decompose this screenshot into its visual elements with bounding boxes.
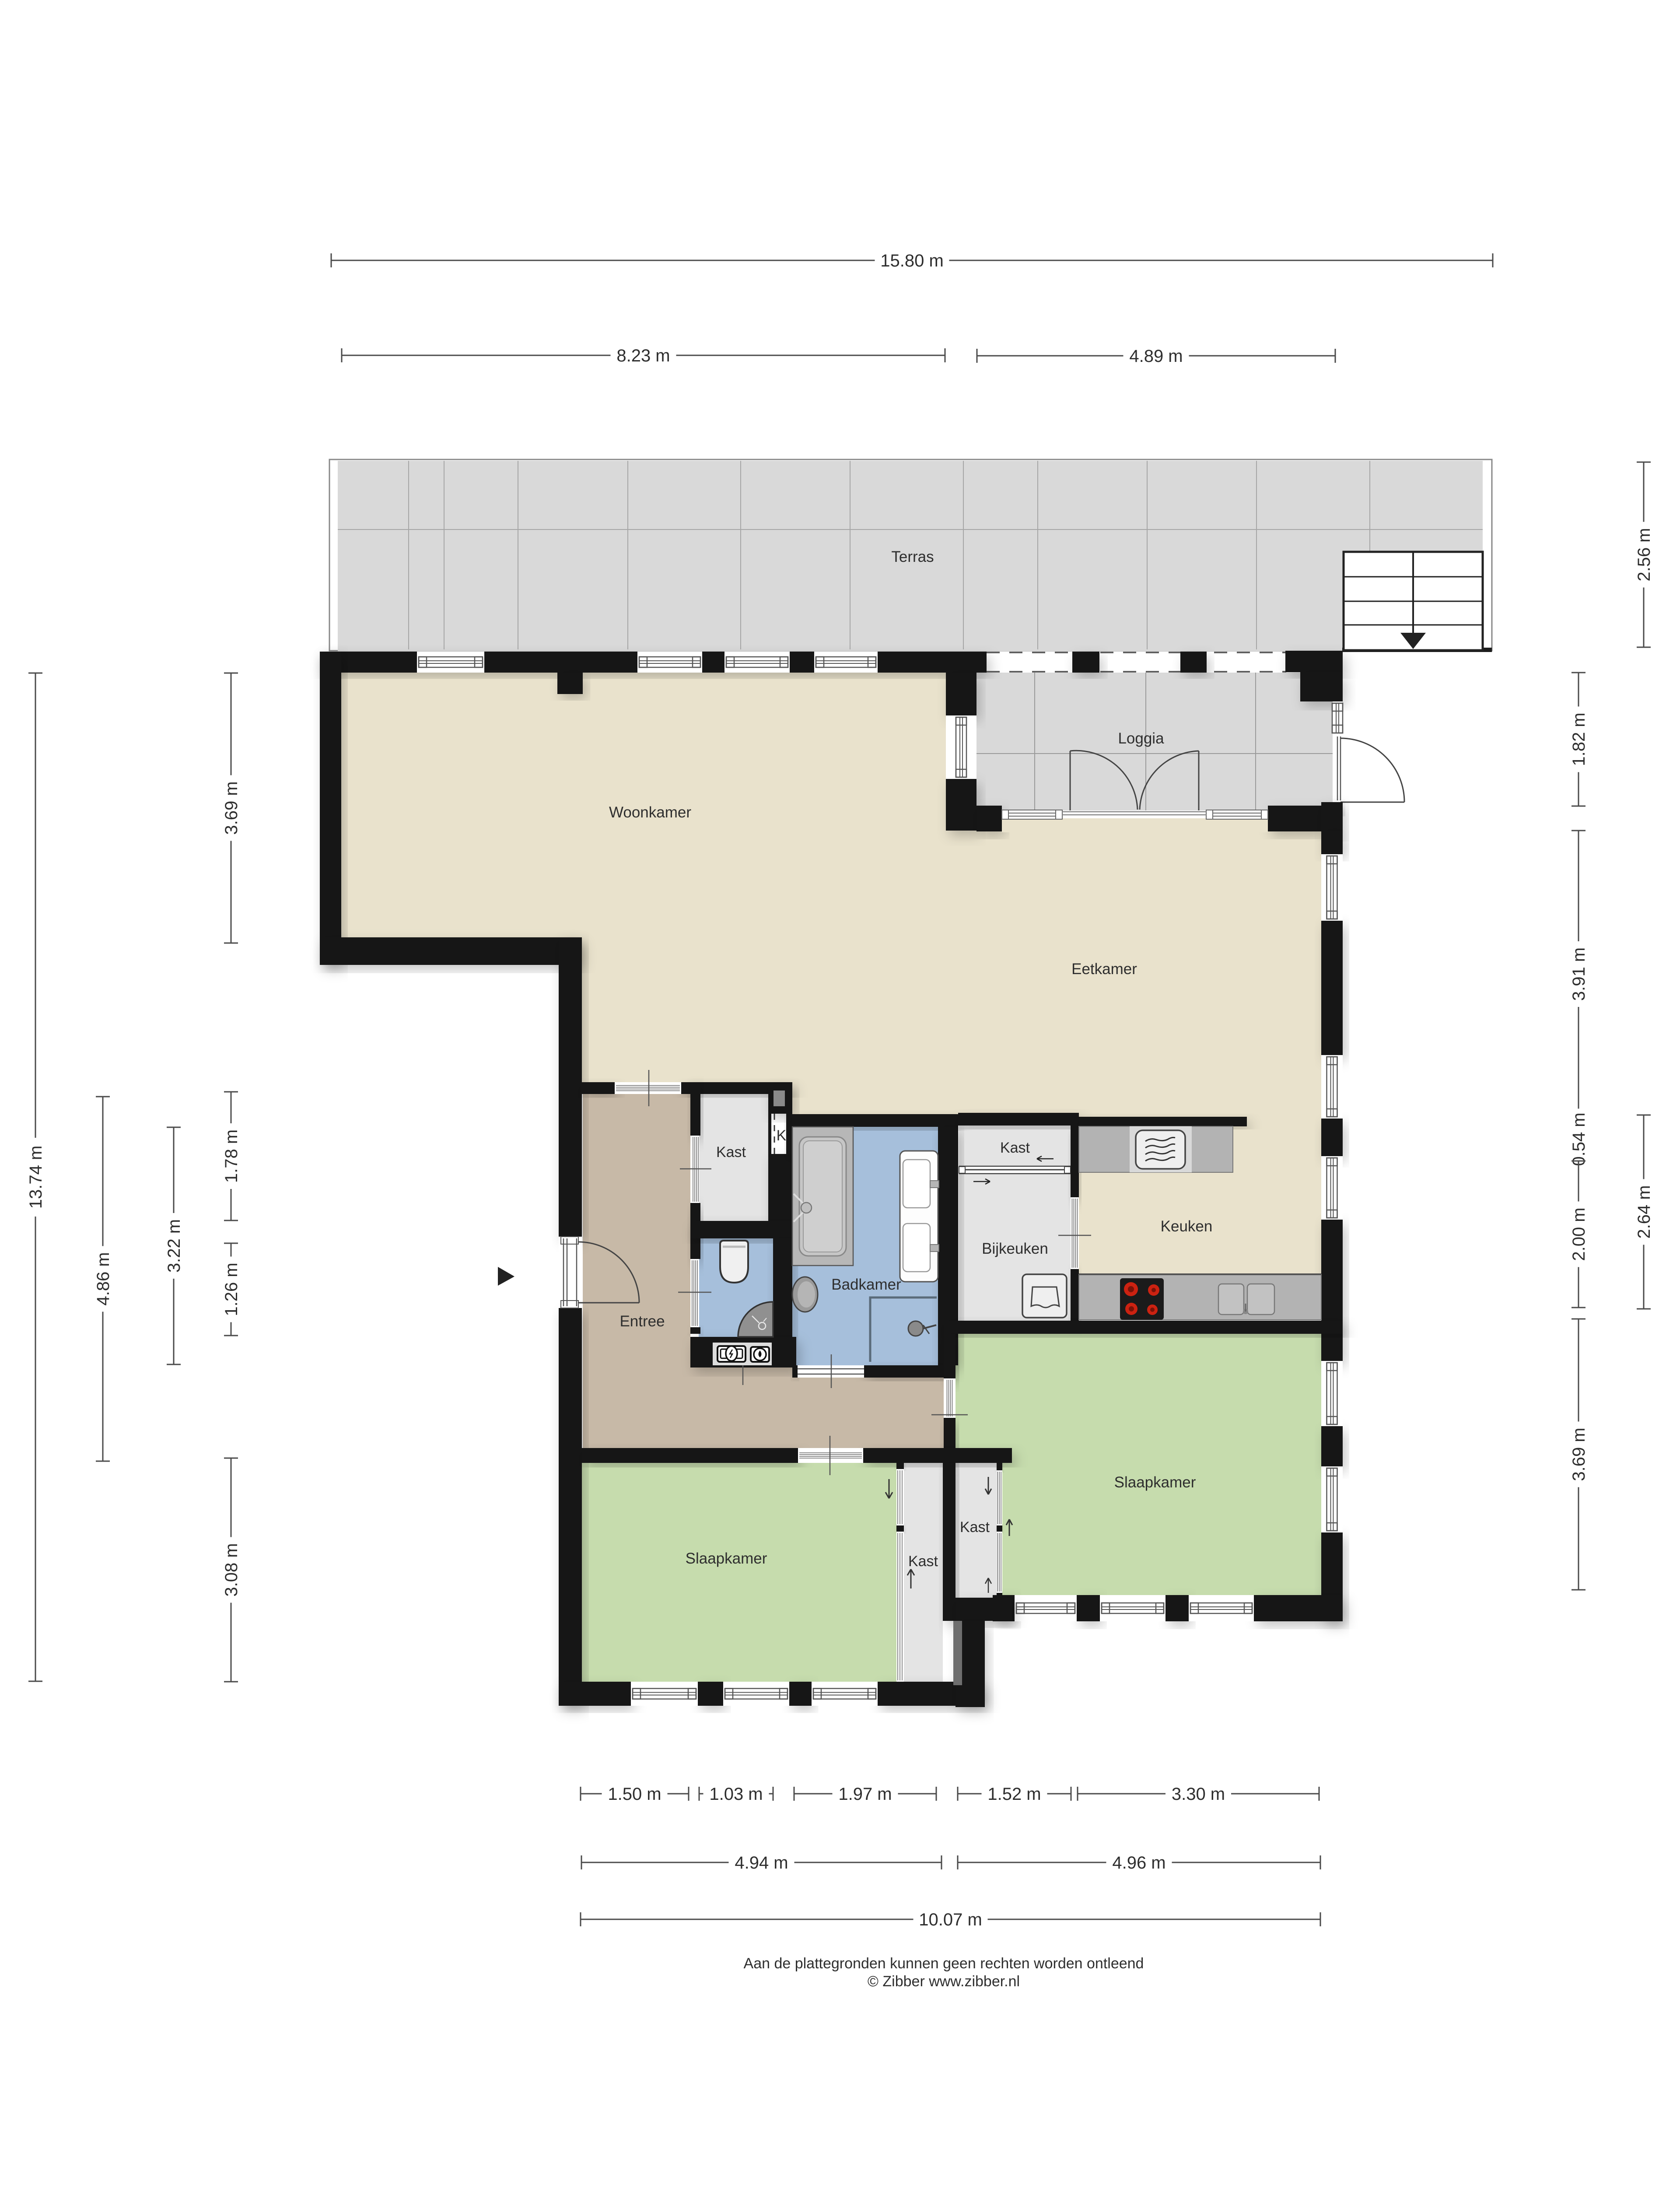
svg-text:Aan de plattegronden kunnen ge: Aan de plattegronden kunnen geen rechten… [744,1955,1144,1972]
svg-text:0.54 m: 0.54 m [1569,1112,1589,1166]
svg-text:15.80 m: 15.80 m [880,251,944,270]
svg-text:1.52 m: 1.52 m [987,1785,1041,1804]
svg-text:Badkamer: Badkamer [831,1276,901,1293]
svg-text:4.89 m: 4.89 m [1129,347,1183,366]
svg-text:3.69 m: 3.69 m [1569,1427,1589,1481]
svg-text:Bijkeuken: Bijkeuken [982,1240,1048,1257]
svg-text:4.86 m: 4.86 m [94,1252,113,1305]
svg-text:3.30 m: 3.30 m [1172,1785,1225,1804]
svg-text:2.56 m: 2.56 m [1634,528,1654,581]
svg-text:© Zibber www.zibber.nl: © Zibber www.zibber.nl [868,1973,1020,1990]
svg-text:13.74 m: 13.74 m [26,1146,45,1209]
svg-text:3.22 m: 3.22 m [164,1219,184,1273]
svg-text:10.07 m: 10.07 m [919,1910,982,1929]
svg-text:Kast: Kast [908,1553,938,1570]
svg-text:Terras: Terras [891,548,934,565]
svg-text:4.96 m: 4.96 m [1112,1853,1165,1872]
svg-text:2.00 m: 2.00 m [1569,1207,1589,1261]
svg-text:1.97 m: 1.97 m [838,1785,892,1804]
svg-text:Kast: Kast [716,1144,746,1161]
svg-text:3.08 m: 3.08 m [222,1543,241,1596]
svg-text:1.50 m: 1.50 m [608,1785,661,1804]
svg-text:1.03 m: 1.03 m [709,1785,763,1804]
svg-text:8.23 m: 8.23 m [616,346,670,365]
svg-text:Eetkamer: Eetkamer [1071,961,1137,978]
svg-text:Kast: Kast [1000,1140,1030,1156]
svg-text:Slaapkamer: Slaapkamer [686,1550,767,1567]
svg-text:1.82 m: 1.82 m [1569,712,1589,766]
svg-text:Loggia: Loggia [1118,730,1164,747]
svg-text:3.69 m: 3.69 m [222,781,241,835]
svg-text:1.78 m: 1.78 m [222,1129,241,1183]
svg-text:1.26 m: 1.26 m [222,1262,241,1316]
svg-text:Entree: Entree [619,1313,665,1330]
svg-text:Keuken: Keuken [1161,1218,1213,1235]
svg-text:Woonkamer: Woonkamer [609,804,691,821]
svg-text:Slaapkamer: Slaapkamer [1114,1474,1196,1491]
svg-text:4.94 m: 4.94 m [735,1853,788,1872]
svg-text:K: K [777,1127,787,1144]
svg-text:3.91 m: 3.91 m [1569,947,1589,1001]
svg-text:2.64 m: 2.64 m [1634,1185,1654,1238]
svg-text:Kast: Kast [960,1519,990,1536]
